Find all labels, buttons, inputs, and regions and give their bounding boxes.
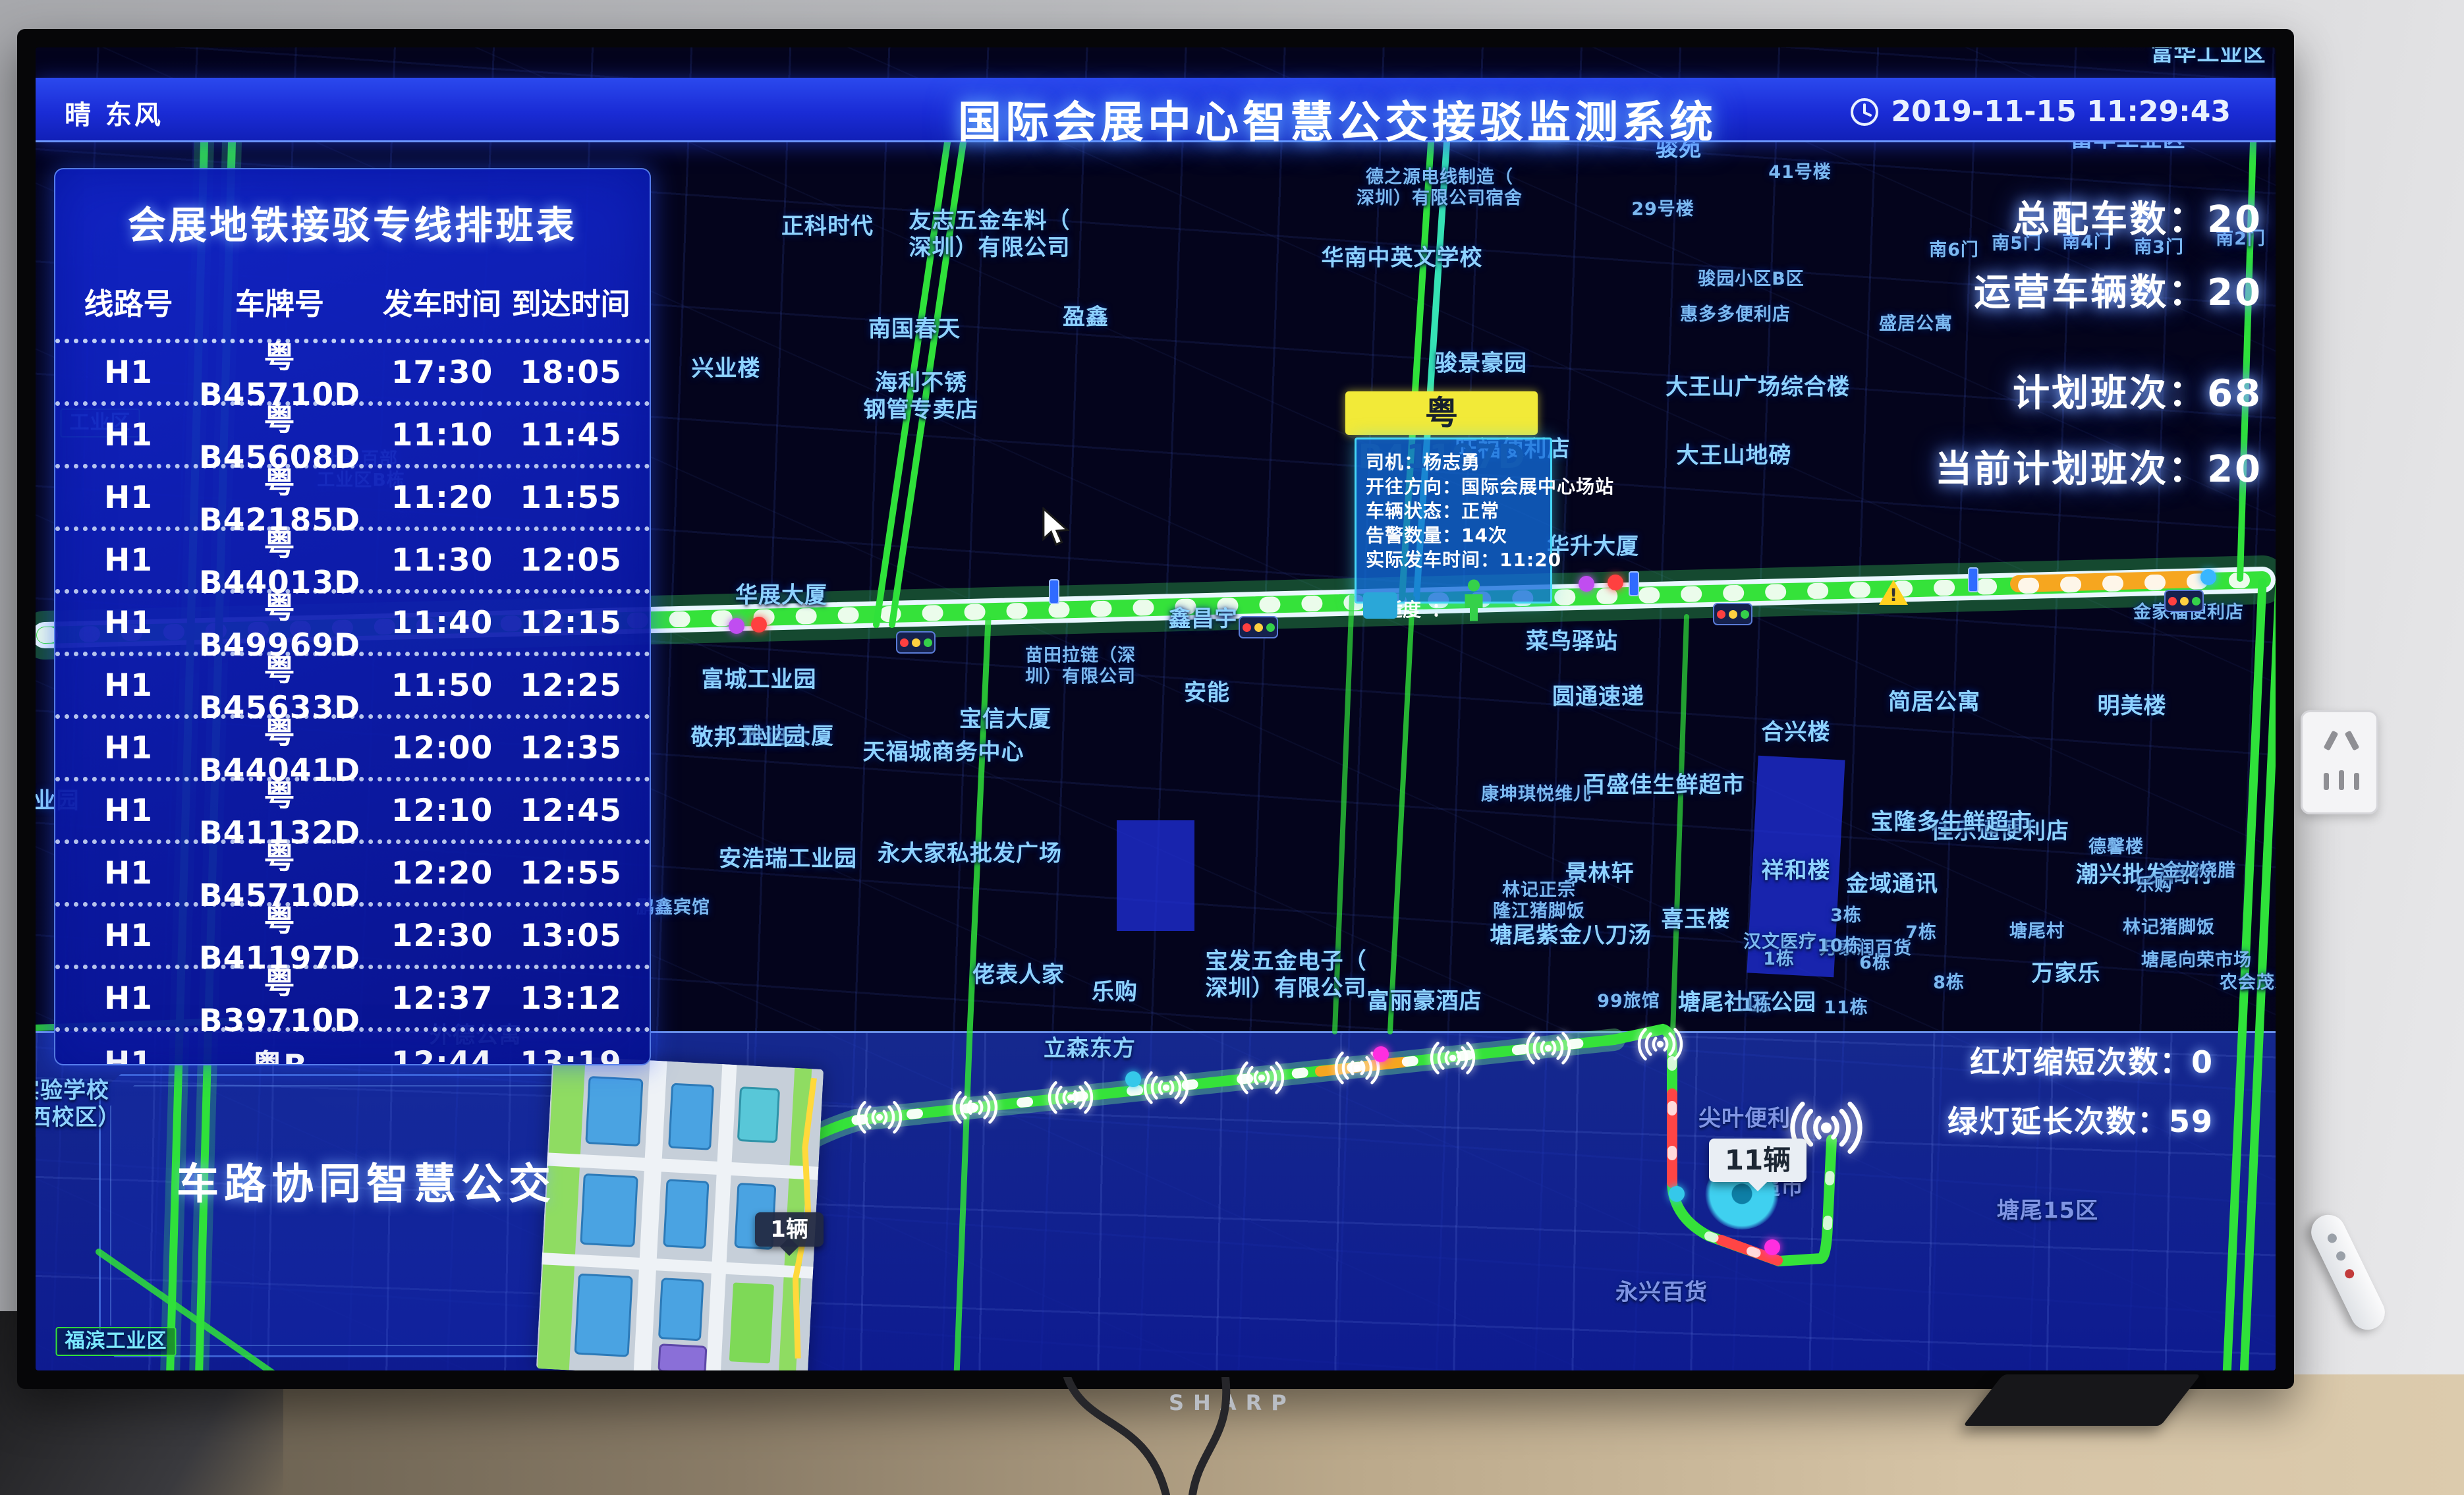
tv-stand-leg [1963, 1374, 2201, 1426]
table-row: H1粤B39710D12:3713:12 [55, 969, 650, 1032]
popup-field: 车辆状态：正常 [1366, 499, 1541, 523]
schedule-title: 会展地铁接驳专线排班表 [55, 194, 650, 250]
schedule-rows: H1粤B45710D17:3018:05H1粤B45608D11:1011:45… [55, 343, 650, 1065]
stat-line: 当前计划班次：20 [1687, 439, 2262, 493]
table-row: H1粤B12:4413:19 [55, 1032, 650, 1065]
column-header: 车牌号 [184, 280, 375, 323]
popup-field: 告警数量：14次 [1366, 523, 1541, 548]
stat-line: 绿灯延长次数：59 [1687, 1098, 2214, 1141]
vehicle-count-badge-1[interactable]: 1辆 [755, 1212, 824, 1247]
stat-line: 总配车数：20 [1687, 190, 2262, 243]
column-header: 发车时间 [375, 280, 509, 323]
person-icon [1461, 578, 1487, 622]
mouse-cursor [1041, 507, 1071, 548]
bottom-panel-title: 车路协同智慧公交 [177, 1150, 556, 1211]
datetime-display: 2019-11-15 11:29:43 [1850, 95, 2231, 128]
signal-stats: 红灯缩短次数：0绿灯延长次数：59 [1687, 1038, 2214, 1157]
column-header: 到达时间 [509, 280, 632, 323]
tv-cables [1028, 1377, 1423, 1495]
page-title: 国际会展中心智慧公交接驳监测系统 [958, 87, 1717, 150]
popup-field: 实际发车时间：11:20 [1366, 548, 1541, 572]
stat-line: 计划班次：68 [1687, 364, 2262, 417]
stat-line: 红灯缩短次数：0 [1687, 1038, 2214, 1082]
popup-field: 开往方向：国际会展中心场站 [1366, 474, 1541, 499]
wall-socket [2301, 710, 2378, 814]
popup-field: 司机：杨志勇 [1366, 450, 1541, 474]
clock-icon [1850, 98, 1879, 127]
bus-info-popup: 司机：杨志勇开往方向：国际会展中心场站车辆状态：正常告警数量：14次实际发车时间… [1355, 437, 1552, 604]
photo-scene: 富华工业区富华工业区骏苑41号楼29号楼正科时代友志五金车料（ 深圳）有限公司德… [0, 0, 2464, 1495]
stat-line: 运营车辆数：20 [1687, 263, 2262, 316]
bus-plate-popup[interactable]: 粤B41197D [1345, 391, 1538, 435]
weather-text: 晴 东风 [65, 94, 163, 132]
schedule-panel: 会展地铁接驳专线排班表 线路号车牌号发车时间到达时间 H1粤B45710D17:… [54, 168, 651, 1065]
header-bar: 晴 东风 国际会展中心智慧公交接驳监测系统 2019-11-15 11:29:4… [36, 78, 2276, 142]
column-header: 线路号 [72, 280, 184, 323]
dashboard-screen: 富华工业区富华工业区骏苑41号楼29号楼正科时代友志五金车料（ 深圳）有限公司德… [36, 47, 2276, 1370]
tv-monitor: 富华工业区富华工业区骏苑41号楼29号楼正科时代友志五金车料（ 深圳）有限公司德… [17, 29, 2294, 1389]
popup-chip [1363, 592, 1397, 619]
fleet-stats: 总配车数：20运营车辆数：20计划班次：68当前计划班次：20 [1687, 190, 2262, 513]
remote-control [2305, 1209, 2390, 1336]
